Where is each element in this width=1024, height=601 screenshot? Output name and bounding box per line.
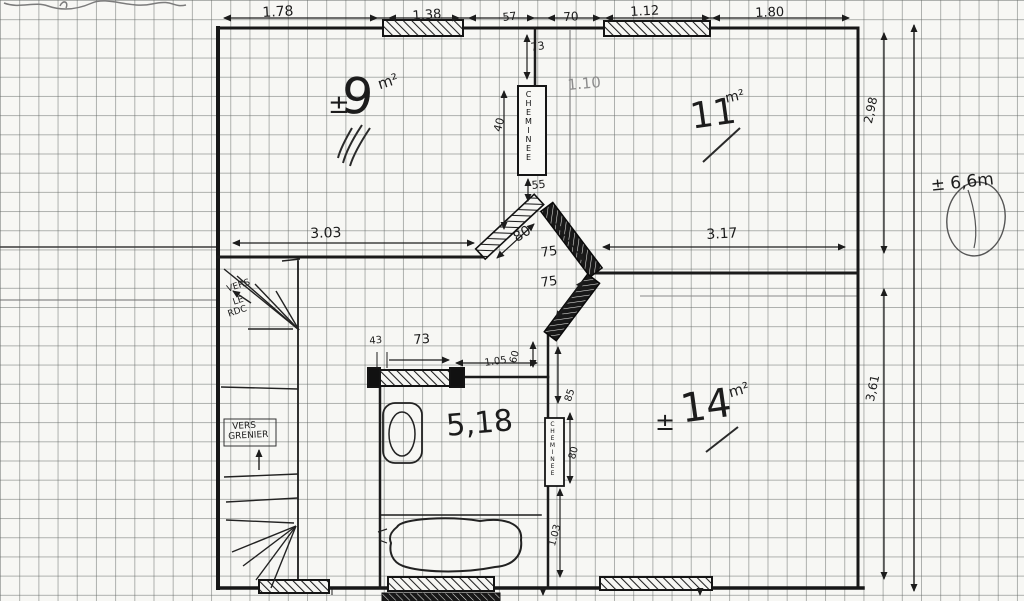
- dim-103: 1.03: [548, 523, 563, 547]
- room14-unit: m²: [727, 380, 751, 400]
- floor-plan-page: 1.781.3857701.121.802,983,61± 6,6m1.10±9…: [0, 0, 1024, 601]
- dim-top-112: 1.12: [630, 4, 660, 18]
- dim-right-298: 2,98: [862, 96, 879, 125]
- dim-top-138: 1.38: [412, 8, 442, 23]
- room14-pm: ±: [655, 410, 675, 434]
- dim-right-361: 3,61: [864, 374, 881, 403]
- dim-303: 3.03: [310, 226, 342, 241]
- dim-bath-73: 73: [413, 333, 430, 347]
- room14-value: 14: [678, 383, 734, 430]
- room9-unit: m²: [376, 72, 400, 93]
- dim-top-178: 1.78: [262, 4, 294, 20]
- dim-80b: 80: [568, 446, 581, 461]
- dim-total-66: ± 6,6m: [930, 171, 995, 195]
- room11-unit: m²: [724, 88, 746, 106]
- dim-85: 85: [564, 388, 577, 403]
- stairs-down-line3: RDC: [227, 305, 248, 320]
- room9-value: 9: [339, 70, 376, 123]
- dim-80-door: 80: [511, 224, 534, 245]
- dim-top-57: 57: [502, 11, 517, 23]
- note-110: 1.10: [567, 75, 602, 93]
- dim-55: 55: [531, 179, 546, 191]
- roombath-value: 5,18: [445, 406, 514, 442]
- chimney-lower-label: CHEMINEE: [549, 421, 555, 477]
- dim-bath-43: 43: [369, 336, 383, 347]
- handwritten-labels: 1.781.3857701.121.802,983,61± 6,6m1.10±9…: [0, 0, 1024, 601]
- dim-317: 3.17: [706, 226, 738, 242]
- dim-40: 40: [492, 116, 506, 132]
- dim-73: 73: [530, 40, 545, 53]
- stairs-up-line2: GRENIER: [228, 431, 269, 442]
- dim-bath-105: 1.05: [484, 356, 507, 369]
- dim-75a: 75: [540, 245, 558, 260]
- dim-bath-60: 60: [509, 350, 522, 365]
- stairs-down-line1: VERS: [226, 279, 251, 295]
- dim-top-180: 1.80: [755, 6, 784, 20]
- chimney-upper-label: CHEMINEE: [524, 90, 532, 162]
- dim-75b: 75: [540, 275, 558, 290]
- dim-top-70: 70: [563, 10, 579, 23]
